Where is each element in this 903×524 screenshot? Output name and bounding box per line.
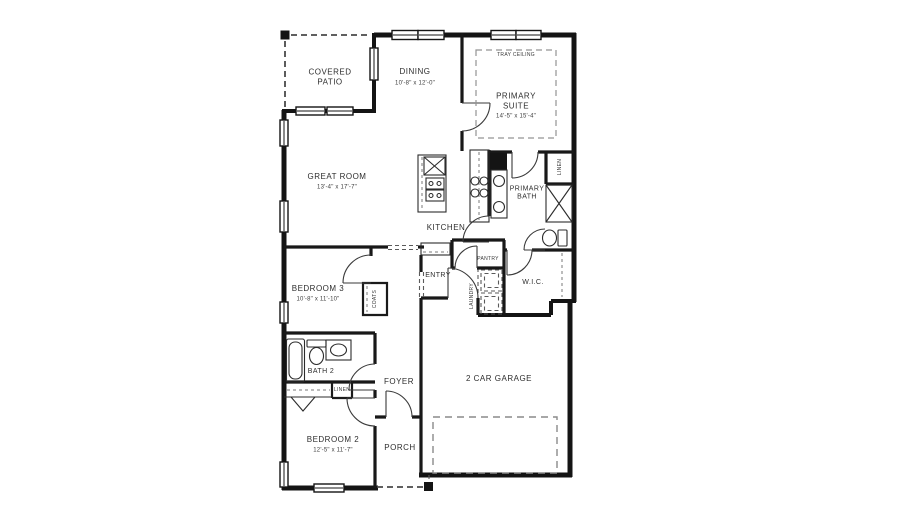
closet-label-pantry: PANTRY xyxy=(477,256,499,262)
window xyxy=(370,48,378,80)
window xyxy=(418,31,444,40)
floor-plan-drawing xyxy=(0,0,903,524)
wall-fill xyxy=(489,153,507,170)
room-label-porch: PORCH xyxy=(375,443,425,453)
room-dims-primary-suite: 14'-5" x 15'-4" xyxy=(496,113,536,120)
window xyxy=(516,31,541,40)
tray-ceiling-note: TRAY CEILING xyxy=(495,52,537,58)
bath2-sink xyxy=(326,340,351,360)
room-dims-bedroom2: 12'-5" x 11'-7" xyxy=(313,447,352,454)
room-label-entry: ENTRY xyxy=(413,272,463,280)
window xyxy=(296,107,325,115)
closet-label-coats: COATS xyxy=(372,290,378,308)
room-dims-dining: 10'-8" x 12'-0" xyxy=(395,80,435,87)
room-label-primary-bath: PRIMARY BATH xyxy=(504,186,550,203)
window xyxy=(314,484,344,492)
closet-label-laundry: LAUNDRY xyxy=(469,283,475,309)
primary-suite-door xyxy=(462,103,490,131)
room-label-bedroom2: BEDROOM 2 xyxy=(293,435,373,445)
room-label-wic: W.I.C. xyxy=(508,279,558,287)
window xyxy=(280,120,288,146)
window xyxy=(327,107,353,115)
room-label-primary-suite: PRIMARY SUITE xyxy=(490,91,542,110)
window xyxy=(280,462,288,487)
washer-dryer xyxy=(481,270,502,314)
primary-bath-door xyxy=(512,152,538,178)
window xyxy=(280,302,288,323)
bedroom3-door xyxy=(343,255,371,283)
porch-post xyxy=(424,482,433,491)
window xyxy=(280,201,288,232)
room-label-great-room: GREAT ROOM xyxy=(292,172,382,182)
closet-label-linen-primary: LINEN xyxy=(557,159,563,175)
room-label-garage: 2 CAR GARAGE xyxy=(444,374,554,384)
bedroom2-door xyxy=(347,398,375,426)
primary-toilet xyxy=(543,230,568,246)
window xyxy=(491,31,516,40)
room-dims-bedroom3: 10'-8" x 11'-10" xyxy=(297,296,340,303)
patio-post xyxy=(281,31,290,40)
garage-door-outline xyxy=(433,417,557,473)
room-label-dining: DINING xyxy=(385,67,445,77)
bath2-toilet xyxy=(307,340,326,365)
front-door xyxy=(386,391,412,417)
kitchen-island xyxy=(418,155,446,212)
vanity-sink xyxy=(494,176,505,187)
porch-edge xyxy=(377,482,433,491)
kitchen-counter xyxy=(470,150,489,222)
closet-label-linen2: LINEN xyxy=(334,387,350,393)
bedroom2-closet xyxy=(287,390,330,411)
room-label-bath2: BATH 2 xyxy=(296,368,346,376)
room-label-foyer: FOYER xyxy=(374,377,424,387)
pantry-door xyxy=(455,246,477,268)
bifold-doors xyxy=(291,397,315,411)
room-label-covered-patio: COVERED PATIO xyxy=(305,67,355,86)
toilet-room-door xyxy=(524,229,545,250)
room-dims-great-room: 13'-4" x 17'-7" xyxy=(317,184,357,191)
window xyxy=(392,31,418,40)
room-label-kitchen: KITCHEN xyxy=(411,223,481,233)
room-label-bedroom3: BEDROOM 3 xyxy=(278,284,358,294)
kitchen-peninsula-counter xyxy=(421,243,450,255)
vanity-sink xyxy=(494,202,505,213)
floor-plan-canvas: COVERED PATIO DINING 10'-8" x 12'-0" TRA… xyxy=(0,0,903,524)
wic-door xyxy=(507,250,532,275)
